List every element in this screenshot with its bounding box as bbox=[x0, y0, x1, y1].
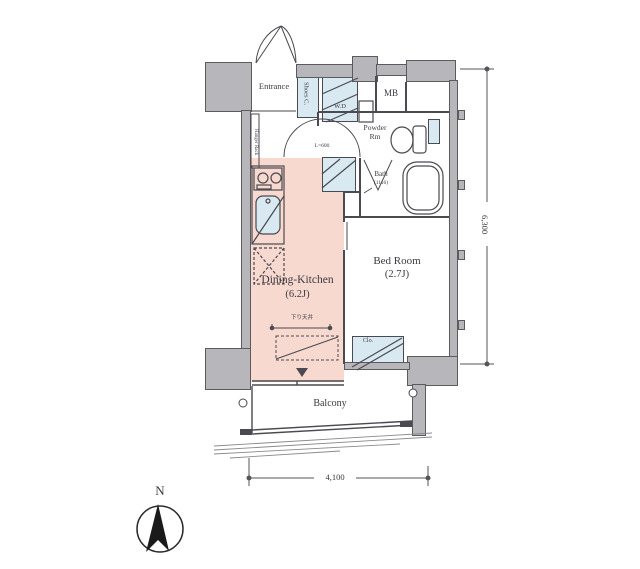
stove-burner-1 bbox=[258, 173, 268, 183]
bath-label: Bath (1116) bbox=[364, 170, 398, 187]
dim-height-label: 6,300 bbox=[480, 203, 490, 247]
dim-width-label: 4,100 bbox=[314, 472, 356, 482]
ceiling-extent-line bbox=[272, 324, 330, 328]
bedroom-label: Bed Room (2.7J) bbox=[348, 255, 446, 281]
ceiling-note-label: 下り天井 bbox=[272, 315, 332, 321]
balcony-drain-left bbox=[239, 399, 247, 407]
entrance-label: Entrance bbox=[251, 81, 297, 91]
balcony-railing bbox=[252, 421, 412, 434]
powder-room-label: Powder Rm bbox=[354, 124, 396, 142]
dk-balcony-window bbox=[252, 381, 344, 385]
washer-dryer-label: W.D bbox=[323, 103, 357, 111]
bathtub-inner bbox=[407, 166, 439, 210]
toilet-tank bbox=[413, 126, 426, 153]
stove-burner-2 bbox=[271, 173, 281, 183]
balcony-entry-marker bbox=[296, 368, 308, 377]
entrance-door-arcs bbox=[256, 26, 296, 63]
floorplan-image: Entrance Shoes C. W.D MB Powder Rm L=600… bbox=[0, 0, 640, 569]
balcony-label: Balcony bbox=[280, 398, 380, 410]
ceiling-area-diagonal bbox=[276, 337, 338, 359]
dining-kitchen-label: Dining-Kitchen (6.2J) bbox=[250, 274, 345, 301]
hanger-rack-label: Hanger Rack bbox=[252, 116, 258, 168]
balcony-drain-right bbox=[409, 389, 417, 397]
hall-arch bbox=[284, 119, 360, 157]
closet-label: Clo. bbox=[356, 338, 380, 345]
meter-box-label: MB bbox=[376, 88, 406, 99]
railing-cap-left bbox=[240, 429, 252, 435]
opening-width-label: L=600 bbox=[306, 143, 338, 149]
stove-grill bbox=[257, 185, 271, 189]
ground-hatch bbox=[214, 433, 432, 458]
washbasin-hatch bbox=[322, 159, 356, 188]
shoes-closet-label: Shoes C. bbox=[302, 72, 310, 116]
kitchen-sink bbox=[256, 196, 280, 234]
compass-icon bbox=[137, 504, 183, 552]
bath-label-leader bbox=[364, 188, 372, 193]
railing-cap-right bbox=[400, 421, 412, 427]
wd-hatch bbox=[322, 78, 358, 122]
compass-north-label: N bbox=[150, 483, 170, 498]
